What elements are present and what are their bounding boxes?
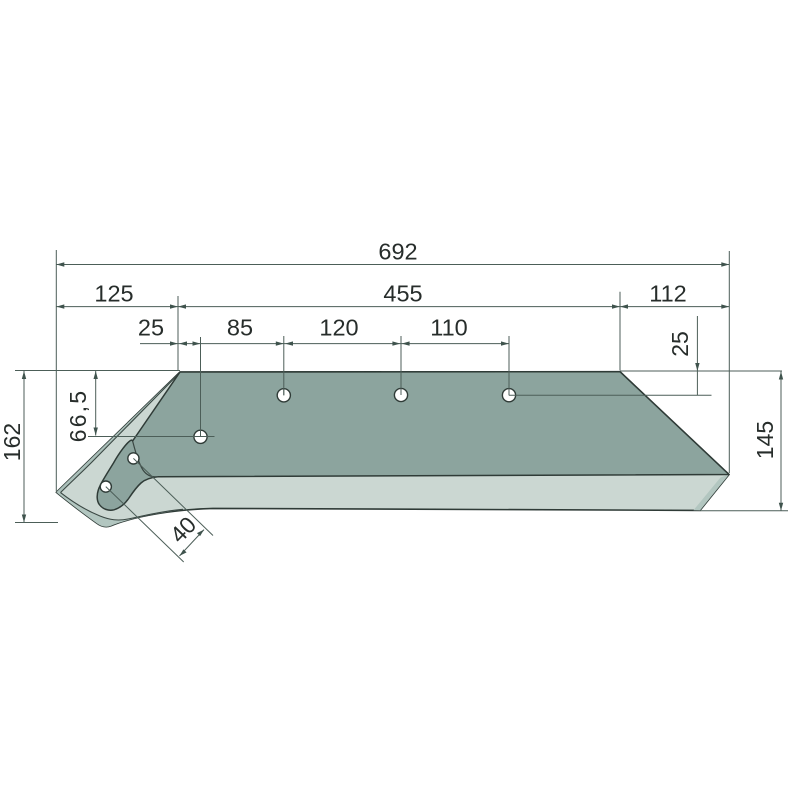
svg-text:112: 112: [649, 281, 686, 307]
svg-text:162: 162: [0, 423, 25, 461]
svg-text:145: 145: [752, 421, 778, 459]
svg-text:25: 25: [138, 315, 164, 341]
svg-text:120: 120: [319, 315, 358, 341]
svg-text:25: 25: [667, 331, 693, 357]
svg-text:66,5: 66,5: [65, 389, 91, 443]
svg-text:455: 455: [383, 281, 422, 307]
svg-text:110: 110: [430, 315, 467, 341]
svg-text:692: 692: [378, 239, 417, 265]
svg-text:125: 125: [94, 281, 133, 307]
svg-text:85: 85: [227, 315, 253, 341]
